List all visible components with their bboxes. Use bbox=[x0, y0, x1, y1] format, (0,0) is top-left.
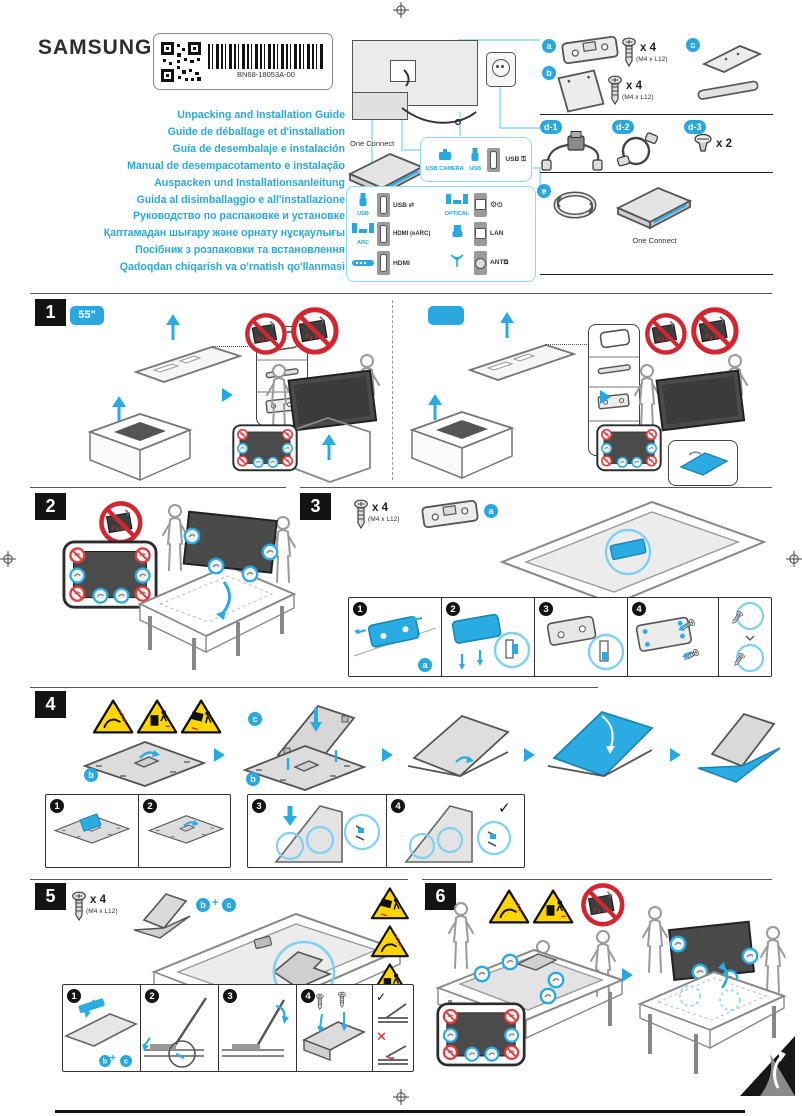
step1-part-a-badge: a bbox=[418, 658, 432, 672]
usb-stick-icon bbox=[471, 148, 479, 161]
tv-in-box bbox=[84, 398, 196, 482]
speakers-icon bbox=[446, 194, 468, 206]
usb-camera-icon bbox=[437, 148, 453, 161]
parts-divider-2 bbox=[540, 172, 773, 173]
parts-divider-1 bbox=[540, 114, 773, 115]
title-uk: Посібник з розпаковки та встановлення bbox=[58, 242, 345, 259]
next-step-arrow bbox=[600, 390, 611, 404]
manual-page: SAMSUNG BN68-18053A-00 Unpacking and Ins… bbox=[0, 0, 802, 1116]
tip-over-warning-icon bbox=[180, 698, 222, 736]
registration-mark-top bbox=[393, 2, 409, 18]
section3-screw-spec: (M4 x L12) bbox=[368, 516, 400, 523]
two-person-warning-icon bbox=[136, 698, 178, 736]
step2-art bbox=[146, 812, 228, 864]
grip-points-inset bbox=[232, 424, 298, 473]
port-row-hdmi: HDMI bbox=[352, 249, 439, 278]
part-b-badge: b bbox=[84, 768, 98, 782]
title-de: Auspacken und Installationsanleitung bbox=[58, 175, 345, 192]
step4-art bbox=[630, 608, 716, 674]
step-divider bbox=[441, 597, 442, 677]
next-step-arrow bbox=[622, 968, 633, 982]
section2-number: 2 bbox=[35, 493, 66, 520]
broadcast-icon: ⧉ bbox=[504, 259, 509, 266]
callout-leader bbox=[545, 344, 587, 345]
title-kk: Қаптамадан шығару және орнату нұсқаулығы bbox=[58, 225, 345, 242]
part-e-badge: e bbox=[537, 184, 551, 198]
correct-art bbox=[376, 1002, 410, 1024]
plus-sign: + bbox=[110, 1053, 116, 1064]
part-number: BN68-18053A-00 bbox=[208, 70, 324, 79]
section1-column-divider bbox=[392, 300, 393, 480]
stand-latch-art bbox=[404, 706, 522, 788]
title-fr: Guide de déballage et d'installation bbox=[58, 124, 345, 141]
usb-out-label: USB ⇄ bbox=[393, 201, 414, 209]
two-person-tv-scene bbox=[158, 494, 298, 614]
foam-packaging bbox=[466, 340, 578, 384]
next-step-arrow bbox=[214, 748, 225, 762]
part-c-badge: c bbox=[120, 1055, 132, 1067]
size-badge-55: 55" bbox=[70, 306, 104, 325]
part-b-badge: b bbox=[542, 66, 556, 80]
qr-code bbox=[160, 41, 202, 83]
optical-port bbox=[474, 193, 487, 217]
step1-art bbox=[52, 812, 134, 864]
registration-mark-right bbox=[786, 551, 802, 567]
part-c-badge: c bbox=[686, 38, 700, 52]
grip-points-inset bbox=[436, 1002, 526, 1068]
ports-panel-main: USB USB ⇄ OPTICAL ⚙⏻ ARC HDMI (eARC) LAN… bbox=[346, 186, 536, 282]
usb-label: USB bbox=[469, 166, 481, 172]
step-divider bbox=[718, 597, 719, 677]
screw-icon bbox=[354, 500, 368, 530]
section2-divider bbox=[30, 487, 286, 488]
ant-label: ANT⧉ bbox=[490, 259, 508, 267]
part-b-plate bbox=[556, 68, 606, 114]
step-divider bbox=[386, 794, 387, 868]
step-divider bbox=[372, 984, 373, 1072]
hdmi-earc-port bbox=[377, 222, 390, 246]
step3-art bbox=[256, 798, 382, 866]
grip-points-inset bbox=[596, 424, 662, 473]
power-sync-icon: ⏻ bbox=[497, 202, 502, 209]
step3-art bbox=[220, 992, 294, 1068]
fold-line bbox=[55, 1110, 745, 1113]
step3-art bbox=[539, 610, 625, 674]
tv-in-box bbox=[406, 396, 518, 480]
section3-screw-qty: x 4 bbox=[372, 502, 388, 514]
next-step-arrow bbox=[670, 748, 681, 762]
part-d3-qty: x 2 bbox=[716, 138, 732, 150]
port-row-optical: OPTICAL ⚙⏻ bbox=[443, 190, 530, 219]
step-divider bbox=[534, 597, 535, 677]
check-icon: ✓ bbox=[498, 799, 511, 817]
tv-on-table-scene bbox=[492, 494, 772, 614]
size-badge-blank bbox=[428, 306, 464, 325]
pinch-warning-icon bbox=[92, 698, 134, 736]
part-b-badge: b bbox=[246, 772, 260, 786]
page-turn-icon bbox=[740, 1036, 795, 1096]
soundbar-icon bbox=[352, 259, 374, 267]
title-en: Unpacking and Installation Guide bbox=[58, 107, 345, 124]
lan-label: LAN bbox=[490, 230, 504, 237]
section3-divider bbox=[300, 487, 772, 488]
screw-a-spec: (M4 x L12) bbox=[636, 56, 668, 63]
step4-art bbox=[298, 992, 370, 1068]
part-d3-badge: d-3 bbox=[684, 120, 706, 134]
part-a-bracket bbox=[420, 498, 480, 530]
section5-number: 5 bbox=[35, 883, 66, 910]
port-row-usb: USB USB ⇄ bbox=[352, 190, 439, 219]
section4-number: 4 bbox=[35, 691, 66, 718]
part-d2-cable-ring bbox=[614, 130, 660, 170]
port-row-hdmi-arc: ARC HDMI (eARC) bbox=[352, 219, 439, 248]
part-c-bar bbox=[694, 80, 762, 102]
one-connect-label: One Connect bbox=[350, 139, 394, 148]
step-divider bbox=[138, 794, 139, 868]
transfer-icon: ⇄ bbox=[409, 202, 415, 209]
usb-stick-icon bbox=[359, 193, 367, 206]
parts-divider-3 bbox=[540, 274, 773, 275]
speakers-arc-icon bbox=[352, 223, 374, 235]
step-1: 1 bbox=[50, 799, 64, 813]
next-step-arrow bbox=[382, 748, 393, 762]
next-step-arrow bbox=[524, 748, 535, 762]
section3-number: 3 bbox=[300, 493, 331, 520]
part-e-cable-coil bbox=[552, 188, 598, 224]
stand-panel-fold-art bbox=[546, 700, 668, 788]
section5-divider bbox=[30, 879, 408, 880]
lift-arrow bbox=[166, 314, 180, 340]
step1-art bbox=[64, 996, 138, 1058]
part-c-plate bbox=[700, 42, 764, 74]
stand-base-art bbox=[80, 736, 210, 790]
usb-port-label: USB ⚿ bbox=[505, 156, 526, 164]
product-label: BN68-18053A-00 bbox=[153, 33, 333, 90]
registration-mark-left bbox=[0, 551, 16, 567]
step2-art bbox=[142, 992, 216, 1068]
foam-packaging bbox=[132, 342, 244, 386]
step-divider bbox=[627, 597, 628, 677]
hdmi-port bbox=[377, 251, 390, 275]
screw-b-qty: x 4 bbox=[626, 80, 642, 92]
title-es: Guía de desembalaje e instalación bbox=[58, 141, 345, 158]
incorrect-art bbox=[376, 1044, 410, 1066]
port-row-lan: LAN bbox=[443, 219, 530, 248]
section1-number: 1 bbox=[35, 299, 66, 326]
part-a-bracket bbox=[560, 34, 620, 66]
screw-detail-panel bbox=[722, 600, 770, 675]
lan-plug-icon bbox=[452, 225, 463, 238]
stand-final-art bbox=[692, 706, 792, 786]
antenna-icon bbox=[449, 254, 465, 268]
ports-panel-top: USB CAMERA USB USB ⚿ bbox=[420, 137, 532, 182]
part-a-badge: a bbox=[542, 39, 556, 53]
usb-port bbox=[377, 193, 390, 217]
title-uz: Qadoqdan chiqarish va o'rnatish qo'llanm… bbox=[58, 259, 345, 276]
part-d1-adapter-cable bbox=[540, 130, 610, 172]
port-row-ant: ANT⧉ bbox=[443, 249, 530, 278]
section5-screw-qty: x 4 bbox=[90, 894, 106, 906]
screw-icon bbox=[72, 892, 86, 922]
lan-port bbox=[474, 222, 487, 246]
usb-port bbox=[487, 148, 500, 172]
section6-divider bbox=[422, 879, 772, 880]
part-e-one-connect bbox=[614, 182, 694, 230]
screw-a-qty: x 4 bbox=[640, 42, 656, 54]
usb-camera-label: USB CAMERA bbox=[426, 166, 464, 172]
ant-port bbox=[474, 251, 487, 275]
hdmi-label: HDMI bbox=[393, 260, 410, 267]
samsung-logo: SAMSUNG bbox=[38, 36, 152, 60]
screw-icon bbox=[608, 76, 622, 106]
section1-divider bbox=[30, 293, 772, 294]
screw-icon bbox=[622, 38, 636, 68]
part-e-caption: One Connect bbox=[602, 236, 707, 245]
title-pt: Manual de desempacotamento e instalação bbox=[58, 158, 345, 175]
tip-over-warning-icon bbox=[370, 886, 410, 922]
part-d3-peg bbox=[694, 134, 712, 154]
hdmi-earc-label: HDMI (eARC) bbox=[393, 231, 430, 237]
part-c-badge: c bbox=[248, 712, 262, 726]
guide-titles: Unpacking and Installation Guide Guide d… bbox=[58, 107, 345, 276]
barcode bbox=[208, 44, 324, 69]
wall-outlet bbox=[486, 52, 516, 87]
title-ru: Руководство по распаковке и установке bbox=[58, 208, 345, 225]
step2-art bbox=[446, 610, 532, 674]
step-2: 2 bbox=[143, 799, 157, 813]
section4-divider bbox=[30, 687, 598, 688]
lock-power-icon: ⚿ bbox=[521, 156, 526, 163]
pinch-warning-icon bbox=[370, 924, 410, 960]
next-step-arrow bbox=[222, 388, 233, 402]
registration-mark-bottom bbox=[393, 1089, 409, 1105]
title-it: Guida al disimballaggio e all'installazi… bbox=[58, 192, 345, 209]
screw-b-spec: (M4 x L12) bbox=[622, 94, 654, 101]
section5-screw-spec: (M4 x L12) bbox=[86, 908, 118, 915]
blue-pad-inset bbox=[668, 440, 738, 486]
lift-arrow bbox=[500, 312, 514, 338]
